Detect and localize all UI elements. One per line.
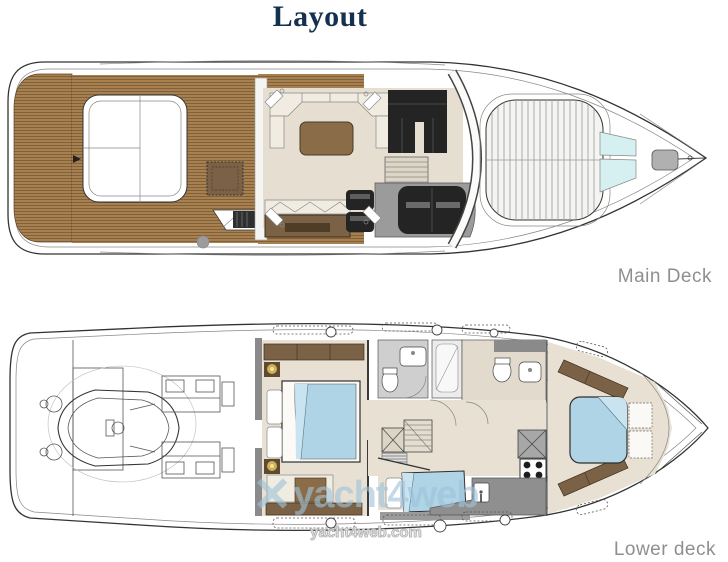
pillow	[386, 478, 402, 508]
stern-cleat	[197, 236, 209, 248]
salon-dinette-seats	[388, 90, 447, 153]
mid-cabin	[262, 340, 368, 516]
cockpit-seating	[83, 95, 187, 202]
foredeck-sunpad	[480, 94, 610, 226]
swim-platform	[14, 74, 72, 242]
lower-deck-label: Lower deck	[614, 539, 716, 561]
pillow	[267, 427, 282, 458]
vip-bed	[570, 397, 627, 463]
mid-cabin-seat	[267, 475, 333, 502]
salon-table	[300, 122, 353, 155]
lower-deck-drawing	[0, 320, 728, 537]
pillow	[267, 390, 282, 424]
bedside-lamp	[264, 362, 280, 377]
pillow	[629, 431, 652, 458]
day-head-bathroom	[378, 340, 428, 398]
mid-cabin-bed	[267, 381, 360, 462]
main-deck-label: Main Deck	[618, 266, 712, 288]
sink	[400, 347, 426, 366]
companionway-stairs	[385, 157, 428, 185]
yacht-layout-page: Layout	[0, 0, 728, 562]
cockpit-wet-bar	[207, 162, 243, 195]
engine-room-bulkhead	[255, 338, 262, 516]
bedside-lamp	[264, 459, 280, 474]
shower-stall	[432, 340, 462, 398]
main-deck-drawing	[0, 52, 728, 267]
mid-cabin-wardrobe	[264, 344, 364, 360]
pillow	[629, 403, 652, 428]
ensuite-bathroom	[462, 340, 546, 402]
page-title: Layout	[0, 0, 640, 34]
